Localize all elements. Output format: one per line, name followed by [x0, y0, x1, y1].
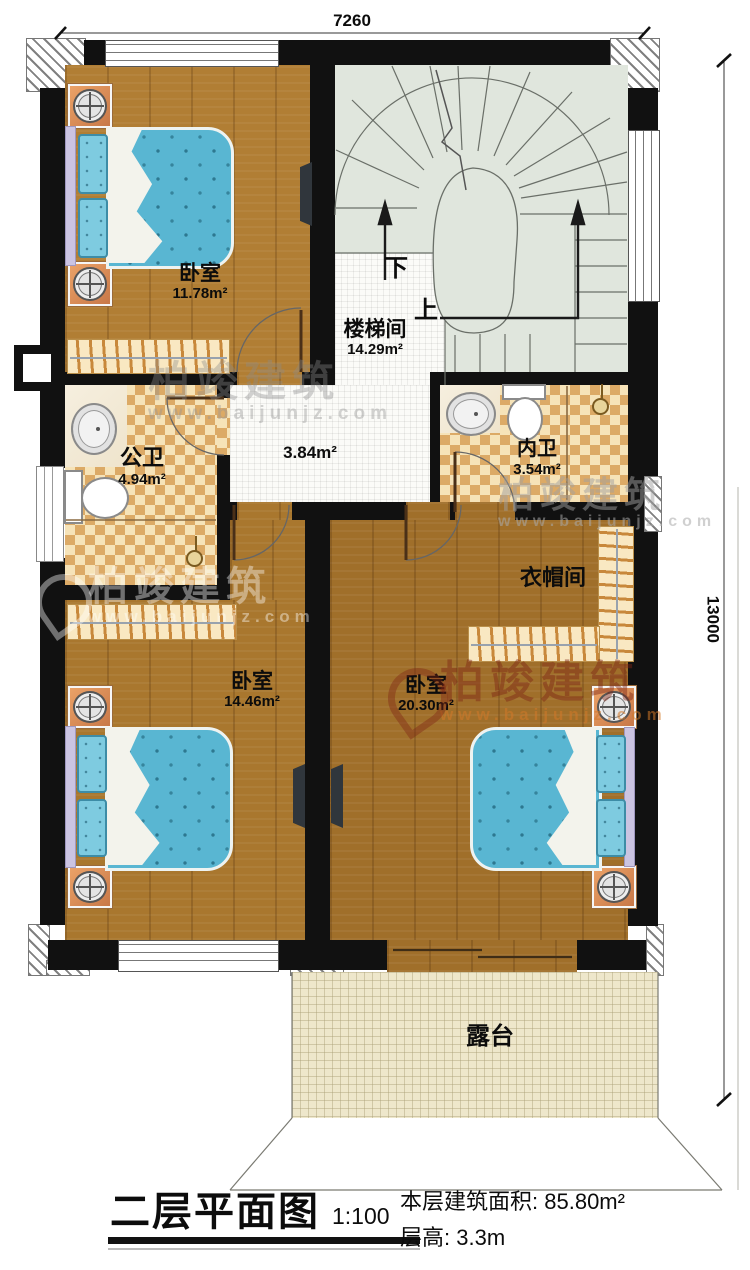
bed-pillow — [77, 799, 107, 857]
wardrobe-bedroom1 — [67, 339, 230, 374]
flue-shaft — [14, 345, 60, 391]
wall-hall-bottom-a — [230, 502, 237, 520]
wall-hall-bottom-b — [292, 502, 406, 520]
bed-headboard — [65, 126, 76, 266]
bed-pillow — [77, 735, 107, 793]
stairwell-area: 14.29m² — [327, 342, 423, 359]
wardrobe-bedroom2 — [67, 604, 237, 640]
sheet-height-value: 3.3m — [456, 1225, 505, 1250]
sheet-height-label: 层高: — [400, 1225, 450, 1250]
sheet-area-line: 本层建筑面积: 85.80m² — [400, 1190, 720, 1214]
bedroom1-area: 11.78m² — [130, 286, 270, 303]
wall-left-upper — [40, 88, 65, 468]
lamp-icon — [73, 267, 107, 301]
lamp-icon — [597, 871, 631, 903]
title-underline-thin — [108, 1248, 420, 1250]
bed-pillow — [596, 735, 626, 793]
bed-pillow — [78, 134, 108, 194]
wall-privbath-bottom — [515, 502, 658, 520]
bed-pillow — [596, 799, 626, 857]
threshold-bedroom3 — [406, 502, 450, 520]
closet-cloakroom-right — [598, 526, 634, 662]
nightstand — [68, 686, 112, 728]
window-bedroom1-top — [105, 40, 279, 67]
dimension-top-value: 7260 — [312, 12, 392, 31]
lamp-icon — [597, 691, 631, 723]
shower-head-icon — [592, 398, 609, 415]
closet-cloakroom-bottom — [468, 626, 600, 662]
cloakroom-label: 衣帽间 — [493, 566, 613, 590]
wall-bottom-b — [277, 940, 387, 970]
wall-pubbath-right-a — [217, 385, 230, 398]
threshold-public-bath — [217, 398, 230, 455]
floor-plan-canvas: 卧室 11.78m² 楼梯间 14.29m² 下 上 3.84m² 公卫 4.9… — [0, 0, 750, 1270]
hatch-right-mid — [644, 476, 662, 532]
bed-pillow — [78, 198, 108, 258]
wall-pubbath-right-b — [217, 455, 230, 600]
tv-icon — [331, 764, 343, 828]
stair-up-label: 上 — [408, 298, 444, 324]
window-bay-public-bath — [36, 466, 64, 562]
lamp-icon — [73, 89, 107, 123]
window-stairwell-right — [628, 130, 660, 302]
lamp-icon — [73, 871, 107, 903]
shower-head-icon — [186, 550, 203, 567]
wall-right-a — [628, 88, 658, 130]
stair-down-label: 下 — [378, 256, 414, 282]
public-bath-label: 公卫 — [87, 446, 197, 470]
private-bath-area: 3.54m² — [482, 462, 592, 479]
terrace-label: 露台 — [430, 1024, 550, 1050]
sheet-area-value: 85.80m² — [544, 1189, 625, 1214]
dimension-right-value: 13000 — [703, 564, 722, 674]
threshold-terrace-slider — [387, 940, 577, 972]
sink — [446, 392, 496, 436]
wall-bedroom1-bottom-b — [302, 372, 335, 385]
bedroom1-label: 卧室 — [130, 262, 270, 285]
nightstand — [68, 866, 112, 908]
nightstand — [68, 84, 112, 128]
nightstand — [592, 866, 636, 908]
public-bath-area: 4.94m² — [87, 472, 197, 489]
bedroom2-label: 卧室 — [182, 670, 322, 693]
sheet-height-line: 层高: 3.3m — [400, 1226, 720, 1250]
nightstand — [592, 686, 636, 728]
lamp-icon — [73, 691, 107, 723]
threshold-private-bath — [455, 502, 515, 520]
wall-bottom-a — [48, 940, 118, 970]
bedroom2-entry-floor — [230, 520, 305, 600]
wall-bottom-c — [577, 940, 646, 970]
window-bedroom2-bottom — [118, 940, 279, 972]
title-underline-thick — [108, 1237, 420, 1244]
sheet-area-label: 本层建筑面积: — [400, 1189, 538, 1214]
wall-bedroom2-bedroom3 — [305, 520, 330, 940]
wall-hall-privbath — [430, 385, 440, 502]
wall-hall-bottom-c — [450, 502, 455, 520]
sheet-title: 二层平面图 — [110, 1190, 340, 1234]
hallway-area: 3.84m² — [255, 444, 365, 463]
threshold-bedroom2 — [237, 502, 292, 520]
private-bath-label: 内卫 — [482, 438, 592, 460]
tv-icon — [293, 764, 305, 828]
wall-top-a — [84, 40, 105, 65]
toilet-bowl — [507, 397, 543, 441]
hatch-bottom-right — [646, 924, 664, 976]
threshold-bedroom1 — [237, 372, 302, 385]
bed-headboard — [65, 726, 76, 868]
tv-icon — [300, 162, 312, 226]
bedroom2-area: 14.46m² — [182, 694, 322, 711]
